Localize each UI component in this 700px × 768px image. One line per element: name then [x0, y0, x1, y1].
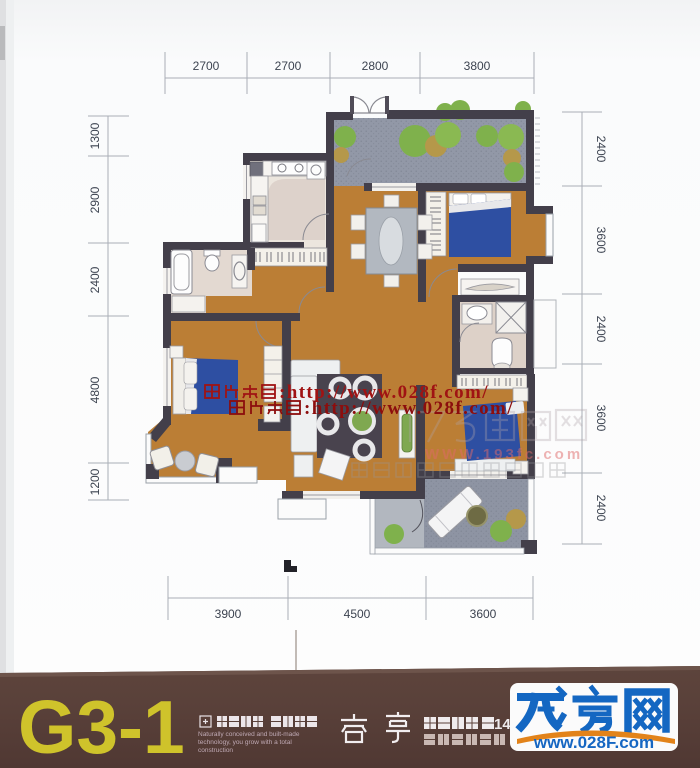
- svg-text:3600: 3600: [470, 607, 497, 621]
- svg-text:3900: 3900: [215, 607, 242, 621]
- svg-text:2400: 2400: [88, 266, 102, 293]
- svg-text:3600: 3600: [594, 227, 608, 254]
- svg-text:1200: 1200: [88, 468, 102, 495]
- svg-text:2800: 2800: [362, 59, 389, 73]
- svg-text:2400: 2400: [594, 316, 608, 343]
- svg-text:Naturally conceived and built-: Naturally conceived and built-made: [198, 731, 300, 738]
- svg-text:3800: 3800: [464, 59, 491, 73]
- svg-text:WWW.193fc.com: WWW.193fc.com: [425, 446, 583, 463]
- svg-text:technology, you grow with a to: technology, you grow with a total: [198, 739, 292, 746]
- svg-text:1300: 1300: [88, 122, 102, 149]
- svg-text:2900: 2900: [88, 186, 102, 213]
- svg-text:2700: 2700: [193, 59, 220, 73]
- svg-text:G3-1: G3-1: [18, 685, 185, 768]
- svg-text:2400: 2400: [594, 136, 608, 163]
- svg-text:3600: 3600: [594, 405, 608, 432]
- svg-text:2700: 2700: [275, 59, 302, 73]
- svg-text::http://www.028f.com/: :http://www.028f.com/: [304, 398, 514, 419]
- svg-text:4800: 4800: [88, 376, 102, 403]
- svg-text:2400: 2400: [594, 495, 608, 522]
- svg-text:4500: 4500: [344, 607, 371, 621]
- svg-text:construction: construction: [198, 747, 233, 754]
- svg-text:www.028F.com: www.028F.com: [533, 733, 654, 752]
